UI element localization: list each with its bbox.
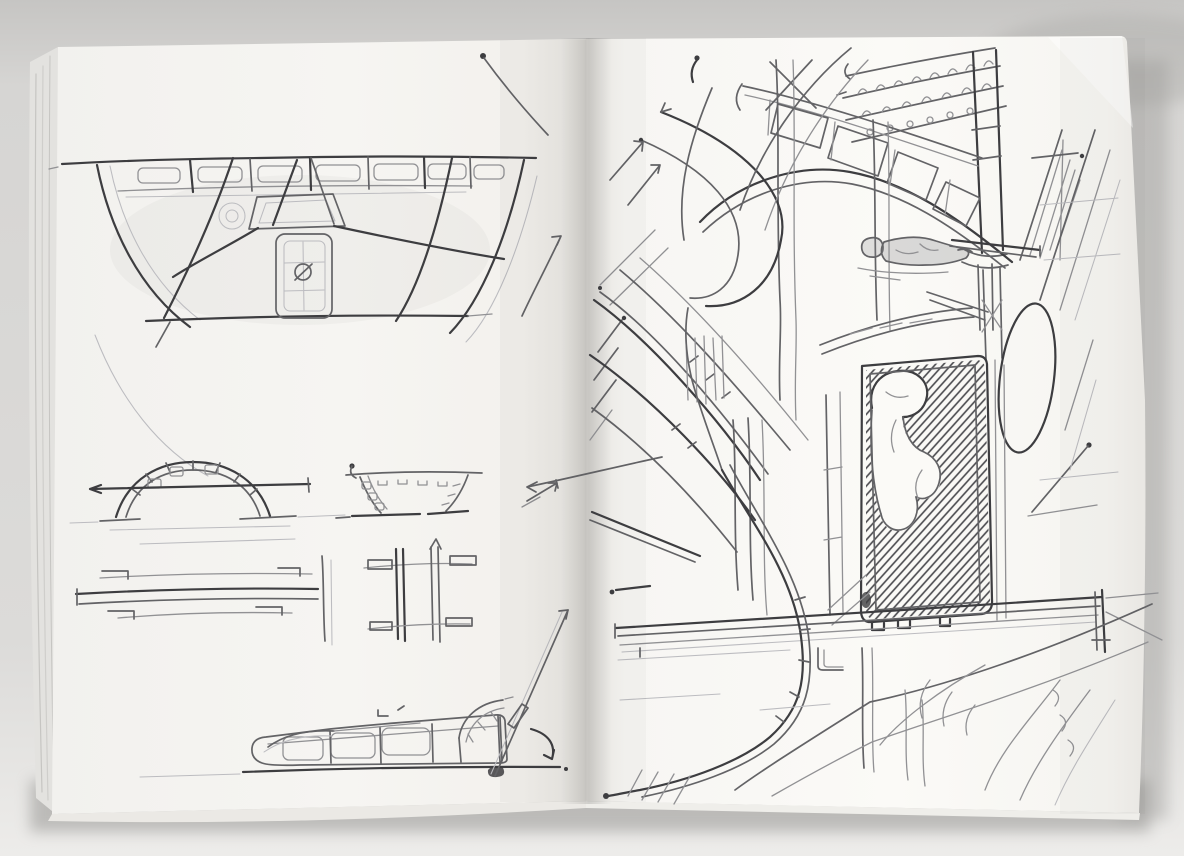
photograph-of-sketchbook — [0, 0, 1184, 856]
pencil-smudge — [110, 175, 490, 325]
sketchbook-photo — [0, 0, 1184, 856]
figure-head — [862, 238, 883, 257]
